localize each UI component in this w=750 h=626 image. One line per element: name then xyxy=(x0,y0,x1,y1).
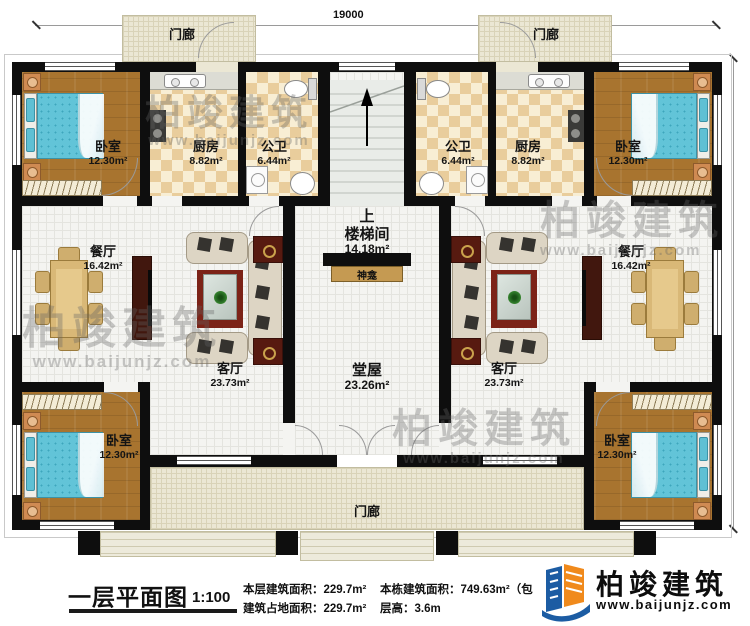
entry-steps xyxy=(458,531,634,557)
window xyxy=(619,62,689,71)
pillow xyxy=(26,98,35,122)
door-opening xyxy=(196,62,238,72)
bedroom-bottom-right-label: 卧室 12.30m² xyxy=(586,434,648,461)
dining-right-label: 餐厅 16.42m² xyxy=(601,245,661,272)
company-logo-icon xyxy=(538,560,592,624)
door-opening xyxy=(455,196,485,206)
washing-machine xyxy=(466,166,488,194)
porch-pillar xyxy=(78,531,100,555)
company-logo-website: www.baijunjz.com xyxy=(596,597,732,612)
sofa-cushion xyxy=(197,237,212,252)
door-opening xyxy=(104,382,138,392)
stove xyxy=(150,110,166,142)
dining-chair xyxy=(35,271,50,293)
window xyxy=(45,62,115,71)
shrine: 神龛 xyxy=(331,266,403,282)
sofa-cushion xyxy=(499,237,514,252)
door-opening xyxy=(337,455,397,467)
sofa xyxy=(186,332,248,364)
porch-top-left-label: 门廊 xyxy=(152,28,212,43)
wardrobe xyxy=(632,394,712,410)
door-opening xyxy=(597,196,631,206)
plan-title: 一层平面图 xyxy=(68,578,188,612)
plant xyxy=(214,291,227,304)
dining-chair xyxy=(684,271,699,293)
stairs-up-label: 上 xyxy=(330,208,404,225)
stat-floor-area: 本层建筑面积：229.7m² xyxy=(243,581,366,600)
porch-pillar xyxy=(276,531,298,555)
door-opening xyxy=(596,382,630,392)
door-opening xyxy=(103,196,137,206)
dining-left-label: 餐厅 16.42m² xyxy=(73,245,133,272)
dining-chair xyxy=(88,271,103,293)
living-right-label: 客厅 23.73m² xyxy=(472,362,536,389)
nightstand xyxy=(693,73,711,91)
stat-footprint-area: 建筑占地面积：229.7m² xyxy=(243,600,366,619)
window xyxy=(12,425,21,495)
dining-chair xyxy=(684,303,699,325)
entry-steps xyxy=(100,531,276,557)
pillow xyxy=(26,437,35,461)
sofa-cushion xyxy=(255,315,270,330)
pillow xyxy=(699,467,708,491)
pillow xyxy=(699,98,708,122)
sofa-cushion xyxy=(219,339,234,354)
nightstand xyxy=(23,73,41,91)
bedroom-bottom-left-label: 卧室 12.30m² xyxy=(88,434,150,461)
sofa xyxy=(486,232,548,264)
toilet-tank xyxy=(417,78,426,100)
stat-building-area: 本栋建筑面积：749.63m²（包 xyxy=(380,581,533,600)
sofa-cushion xyxy=(521,237,536,252)
dining-chair xyxy=(58,336,80,351)
sofa xyxy=(186,232,248,264)
sofa xyxy=(486,332,548,364)
porch-bottom-label: 门廊 xyxy=(337,505,397,520)
dimension-line-right xyxy=(733,58,734,530)
porch-bottom xyxy=(150,467,584,530)
dining-chair xyxy=(631,271,646,293)
kitchen-left-label: 厨房 8.82m² xyxy=(176,140,236,167)
bathroom-left-label: 公卫 6.44m² xyxy=(244,140,304,167)
stairs xyxy=(330,80,404,206)
tv xyxy=(582,270,586,326)
toilet xyxy=(284,80,308,98)
wardrobe xyxy=(22,180,102,196)
nightstand xyxy=(693,502,711,520)
window xyxy=(713,250,722,335)
wardrobe xyxy=(22,394,102,410)
sofa-cushion xyxy=(464,315,479,330)
dining-chair xyxy=(35,303,50,325)
plan-scale: 1:100 xyxy=(192,589,230,606)
door-opening xyxy=(552,196,582,206)
bedroom-top-right-label: 卧室 12.30m² xyxy=(588,140,668,167)
dining-chair xyxy=(654,336,676,351)
nightstand xyxy=(23,502,41,520)
porch-pillar xyxy=(634,531,656,555)
room-living-right-lower xyxy=(451,382,584,455)
door-opening xyxy=(439,423,451,455)
dining-chair xyxy=(88,303,103,325)
sofa-cushion xyxy=(499,339,514,354)
porch-pillar xyxy=(436,531,458,555)
window xyxy=(713,425,722,495)
sofa-cushion xyxy=(521,339,536,354)
sofa-cushion xyxy=(197,339,212,354)
dining-chair xyxy=(631,303,646,325)
door-opening xyxy=(496,62,538,72)
sofa-cushion xyxy=(219,237,234,252)
nightstand xyxy=(23,163,41,181)
nightstand xyxy=(693,163,711,181)
window xyxy=(12,250,21,335)
bathroom-sink xyxy=(419,172,444,195)
dimension-top-label: 19000 xyxy=(333,9,364,21)
toilet-tank xyxy=(308,78,317,100)
door-opening xyxy=(152,196,182,206)
stat-story-height: 层高：3.6m xyxy=(380,600,441,619)
plant xyxy=(508,291,521,304)
nightstand xyxy=(693,412,711,430)
living-left-label: 客厅 23.73m² xyxy=(198,362,262,389)
stove xyxy=(568,110,584,142)
window xyxy=(620,521,694,530)
tv xyxy=(148,270,152,326)
porch-top-right-label: 门廊 xyxy=(516,28,576,43)
hall-label: 堂屋 23.26m² xyxy=(317,362,417,393)
side-table xyxy=(253,236,283,263)
bedroom-top-left-label: 卧室 12.30m² xyxy=(68,140,148,167)
pillow xyxy=(699,128,708,152)
pillow xyxy=(26,128,35,152)
sofa-cushion xyxy=(255,285,270,300)
side-table xyxy=(451,338,481,365)
bathroom-sink xyxy=(290,172,315,195)
door-opening xyxy=(283,423,295,455)
window xyxy=(12,95,21,165)
shrine-label: 神龛 xyxy=(357,267,377,282)
window xyxy=(40,521,114,530)
stairwell-label: 楼梯间 14.18m² xyxy=(317,226,417,257)
washing-machine xyxy=(246,166,268,194)
window xyxy=(339,62,395,71)
wardrobe xyxy=(632,180,712,196)
sofa-cushion xyxy=(464,285,479,300)
floor-plan-page: 19000 12600 门廊 门廊 xyxy=(0,0,750,626)
kitchen-sink xyxy=(528,74,570,88)
entry-steps xyxy=(300,531,434,561)
room-living-left-lower xyxy=(150,382,283,455)
door-opening xyxy=(249,196,279,206)
window xyxy=(483,456,557,465)
window xyxy=(713,95,722,165)
kitchen-right-label: 厨房 8.82m² xyxy=(498,140,558,167)
title-underline xyxy=(69,609,237,613)
kitchen-sink xyxy=(164,74,206,88)
nightstand xyxy=(23,412,41,430)
bathroom-right-label: 公卫 6.44m² xyxy=(428,140,488,167)
side-table xyxy=(253,338,283,365)
pillow xyxy=(699,437,708,461)
window xyxy=(177,456,251,465)
pillow xyxy=(26,467,35,491)
toilet xyxy=(426,80,450,98)
side-table xyxy=(451,236,481,263)
